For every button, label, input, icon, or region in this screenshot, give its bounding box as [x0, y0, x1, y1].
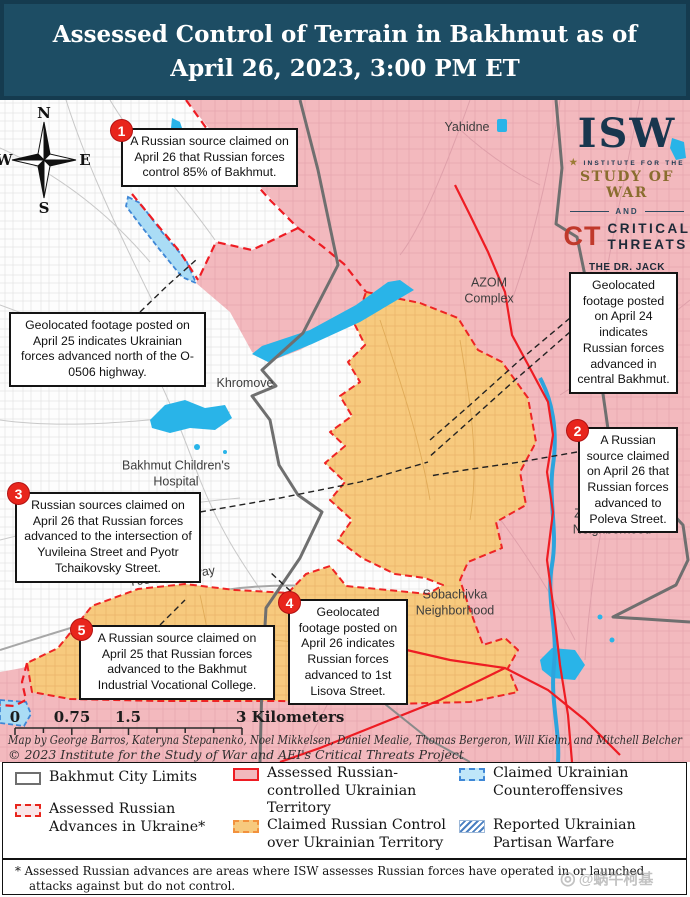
legend-item-claimed-russian: Claimed Russian Control over Ukrainian T…: [233, 817, 448, 852]
annotation-text-5: A Russian source claimed on April 25 tha…: [87, 631, 267, 694]
annotation-text-1: A Russian source claimed on April 26 tha…: [129, 134, 290, 181]
sobachivka-line2: Neighborhood: [416, 603, 495, 619]
annotation-number-3: 3: [7, 482, 30, 505]
annotation-text-2: A Russian source claimed on April 26 tha…: [586, 433, 670, 527]
azom-line2: Complex: [464, 291, 513, 307]
claimed-russian-swatch: [233, 820, 259, 833]
annotation-number-4: 4: [278, 591, 301, 614]
watermark-text: @蜗牛柯基: [579, 868, 654, 889]
compass-w: W: [0, 151, 14, 169]
scale-3km: 3 Kilometers: [236, 708, 344, 726]
legend-item-partisan-warfare: Reported Ukrainian Partisan Warfare: [459, 817, 674, 852]
institute-line: ★ INSTITUTE FOR THE: [566, 157, 688, 168]
sobachivka-line1: Sobachivka: [416, 587, 495, 603]
annotation-number-5: 5: [70, 618, 93, 641]
map-label-sobachivka: Sobachivka Neighborhood: [416, 587, 495, 618]
isw-wordmark: ISW: [566, 112, 688, 156]
legend-label: Assessed Russian Advances in Ukraine*: [49, 801, 243, 836]
hospital-line2: Hospital: [122, 474, 230, 490]
star-icon: ★: [569, 157, 579, 167]
ct-mark: CT: [564, 221, 602, 252]
watermark-icon: ◎: [560, 871, 576, 886]
annotation-box-4: 4 Geolocated footage posted on April 26 …: [288, 599, 408, 705]
isw-bakhmut-map: Assessed Control of Terrain in Bakhmut a…: [0, 0, 690, 897]
azom-line1: AZOM: [464, 275, 513, 291]
callout-text-april-24: Geolocated footage posted on April 24 in…: [577, 278, 670, 388]
study-of-war-text: STUDY OF WAR: [566, 169, 688, 201]
legend-item-counteroffensives: Claimed Ukrainian Counteroffensives: [459, 765, 631, 800]
watermark: ◎ @蜗牛柯基: [560, 868, 653, 889]
annotation-box-2: 2 A Russian source claimed on April 26 t…: [578, 427, 678, 533]
critical-threats-logo: CT CRITICAL THREATS: [566, 221, 688, 252]
scale-0: 0: [10, 708, 20, 726]
and-text: AND: [615, 207, 638, 216]
counteroffensives-swatch: [459, 768, 485, 781]
map-label-yahidne: Yahidne: [445, 120, 490, 136]
legend-label: Claimed Russian Control over Ukrainian T…: [267, 817, 448, 852]
critical-text: CRITICAL: [608, 221, 690, 237]
partisan-warfare-swatch: [459, 820, 485, 833]
annotation-box-3: 3 Russian sources claimed on April 26 th…: [15, 492, 201, 583]
city-limits-swatch: [15, 772, 41, 785]
legend-item-russian-controlled: Assessed Russian-controlled Ukrainian Te…: [233, 765, 448, 818]
callout-box-april-25: Geolocated footage posted on April 25 in…: [9, 312, 206, 387]
legend: Bakhmut City Limits Assessed Russian Adv…: [2, 762, 687, 859]
title-line-1: Assessed Control of Terrain in Bakhmut a…: [4, 18, 686, 52]
title-line-2: April 26, 2023, 3:00 PM ET: [4, 52, 686, 86]
annotation-text-3: Russian sources claimed on April 26 that…: [23, 498, 193, 577]
legend-item-russian-advances: Assessed Russian Advances in Ukraine*: [15, 801, 243, 836]
and-divider: AND: [570, 207, 684, 216]
russian-controlled-swatch: [233, 768, 259, 781]
map-label-childrens-hospital: Bakhmut Children's Hospital: [122, 458, 230, 489]
compass-n: N: [37, 104, 51, 122]
legend-label: Bakhmut City Limits: [49, 769, 197, 787]
scale-075: 0.75: [54, 708, 91, 726]
annotation-box-1: 1 A Russian source claimed on April 26 t…: [121, 128, 298, 187]
callout-text-april-25: Geolocated footage posted on April 25 in…: [17, 318, 198, 381]
scale-15: 1.5: [115, 708, 141, 726]
legend-label: Reported Ukrainian Partisan Warfare: [493, 817, 674, 852]
callout-box-april-24: Geolocated footage posted on April 24 in…: [569, 272, 678, 394]
legend-item-city-limits: Bakhmut City Limits: [15, 769, 235, 787]
divider-line: [570, 211, 609, 212]
compass-s: S: [39, 199, 50, 217]
annotation-number-1: 1: [110, 119, 133, 142]
annotation-number-2: 2: [566, 419, 589, 442]
threats-text: THREATS: [608, 237, 690, 253]
map-label-azom-complex: AZOM Complex: [464, 275, 513, 306]
map-label-khromove: Khromove: [217, 376, 274, 392]
attribution-line-1: Map by George Barros, Kateryna Stepanenk…: [7, 732, 683, 747]
compass-e: E: [79, 151, 90, 169]
attribution-line-2: © 2023 Institute for the Study of War an…: [8, 747, 465, 762]
map-title-bar: Assessed Control of Terrain in Bakhmut a…: [0, 0, 690, 100]
legend-label: Claimed Ukrainian Counteroffensives: [493, 765, 631, 800]
divider-line: [645, 211, 684, 212]
legend-label: Assessed Russian-controlled Ukrainian Te…: [267, 765, 448, 818]
russian-advances-swatch: [15, 804, 41, 817]
institute-text: INSTITUTE FOR THE: [583, 160, 684, 167]
annotation-box-5: 5 A Russian source claimed on April 25 t…: [79, 625, 275, 700]
hospital-line1: Bakhmut Children's: [122, 458, 230, 474]
annotation-text-4: Geolocated footage posted on April 26 in…: [296, 605, 400, 699]
